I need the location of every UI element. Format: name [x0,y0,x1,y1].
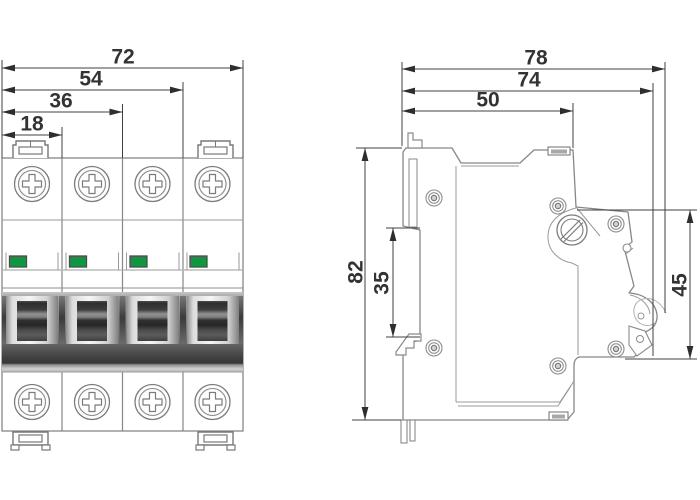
toggle-handle [138,301,168,341]
rivet-icon [426,190,442,206]
terminal-screw-icon [75,385,110,420]
pivot-hole [623,244,631,252]
dim-label-width-total: 72 [111,46,134,69]
rivet-icon [608,216,624,232]
pivot-hole [638,313,644,319]
din-clip-top-icon [13,141,48,158]
terminal-screw-icon [15,167,50,202]
din-clip-top-icon [198,141,233,158]
dim-label-width-3pole: 54 [79,68,103,91]
rivet-icon [550,198,566,214]
terminal-screw-icon [15,385,50,420]
din-clip-bottom-icon [11,432,50,450]
dim-label-width-2pole: 36 [49,90,72,113]
toggle-handle [77,301,107,341]
status-indicator-green [10,256,27,267]
toggle-band [2,292,243,372]
pivot-hole [637,336,644,343]
toggle-handle [17,301,47,341]
dim-label-depth-back: 50 [476,89,499,112]
terminal-screw-icon [135,167,170,202]
din-clip-prong [410,420,415,441]
rivet-icon [608,341,624,357]
rivet-icon [426,340,442,356]
din-clip-bottom-icon [196,432,235,450]
dim-label-height-total: 82 [344,260,367,283]
dim-label-depth-body: 74 [517,69,541,92]
din-latch-slider [409,159,417,227]
dim-label-width-1pole: 18 [20,113,44,136]
terminal-screw-icon [195,385,230,420]
dim-label-din-recess: 35 [370,271,393,295]
side-terminal-screw-icon [557,215,587,245]
status-indicator-green [70,256,87,267]
toggle-handle [198,301,228,341]
status-indicator-green [190,256,207,267]
breaker-dimension-drawing: 72 54 36 18 [0,0,700,500]
front-view: 72 54 36 18 [2,46,243,451]
terminal-screw-icon [135,385,170,420]
side-view: 78 74 50 82 35 45 [344,47,697,444]
status-indicator-green [130,256,147,267]
dim-label-front-height: 45 [668,273,691,297]
side-body-outline [403,148,657,420]
rivet-icon [550,358,566,374]
dim-label-depth-total: 78 [524,47,548,70]
terminal-screw-icon [75,167,110,202]
terminal-screw-icon [195,167,230,202]
din-clip-prong [401,420,407,443]
technical-drawing: 72 54 36 18 [0,0,700,500]
din-hook-top [408,133,422,148]
